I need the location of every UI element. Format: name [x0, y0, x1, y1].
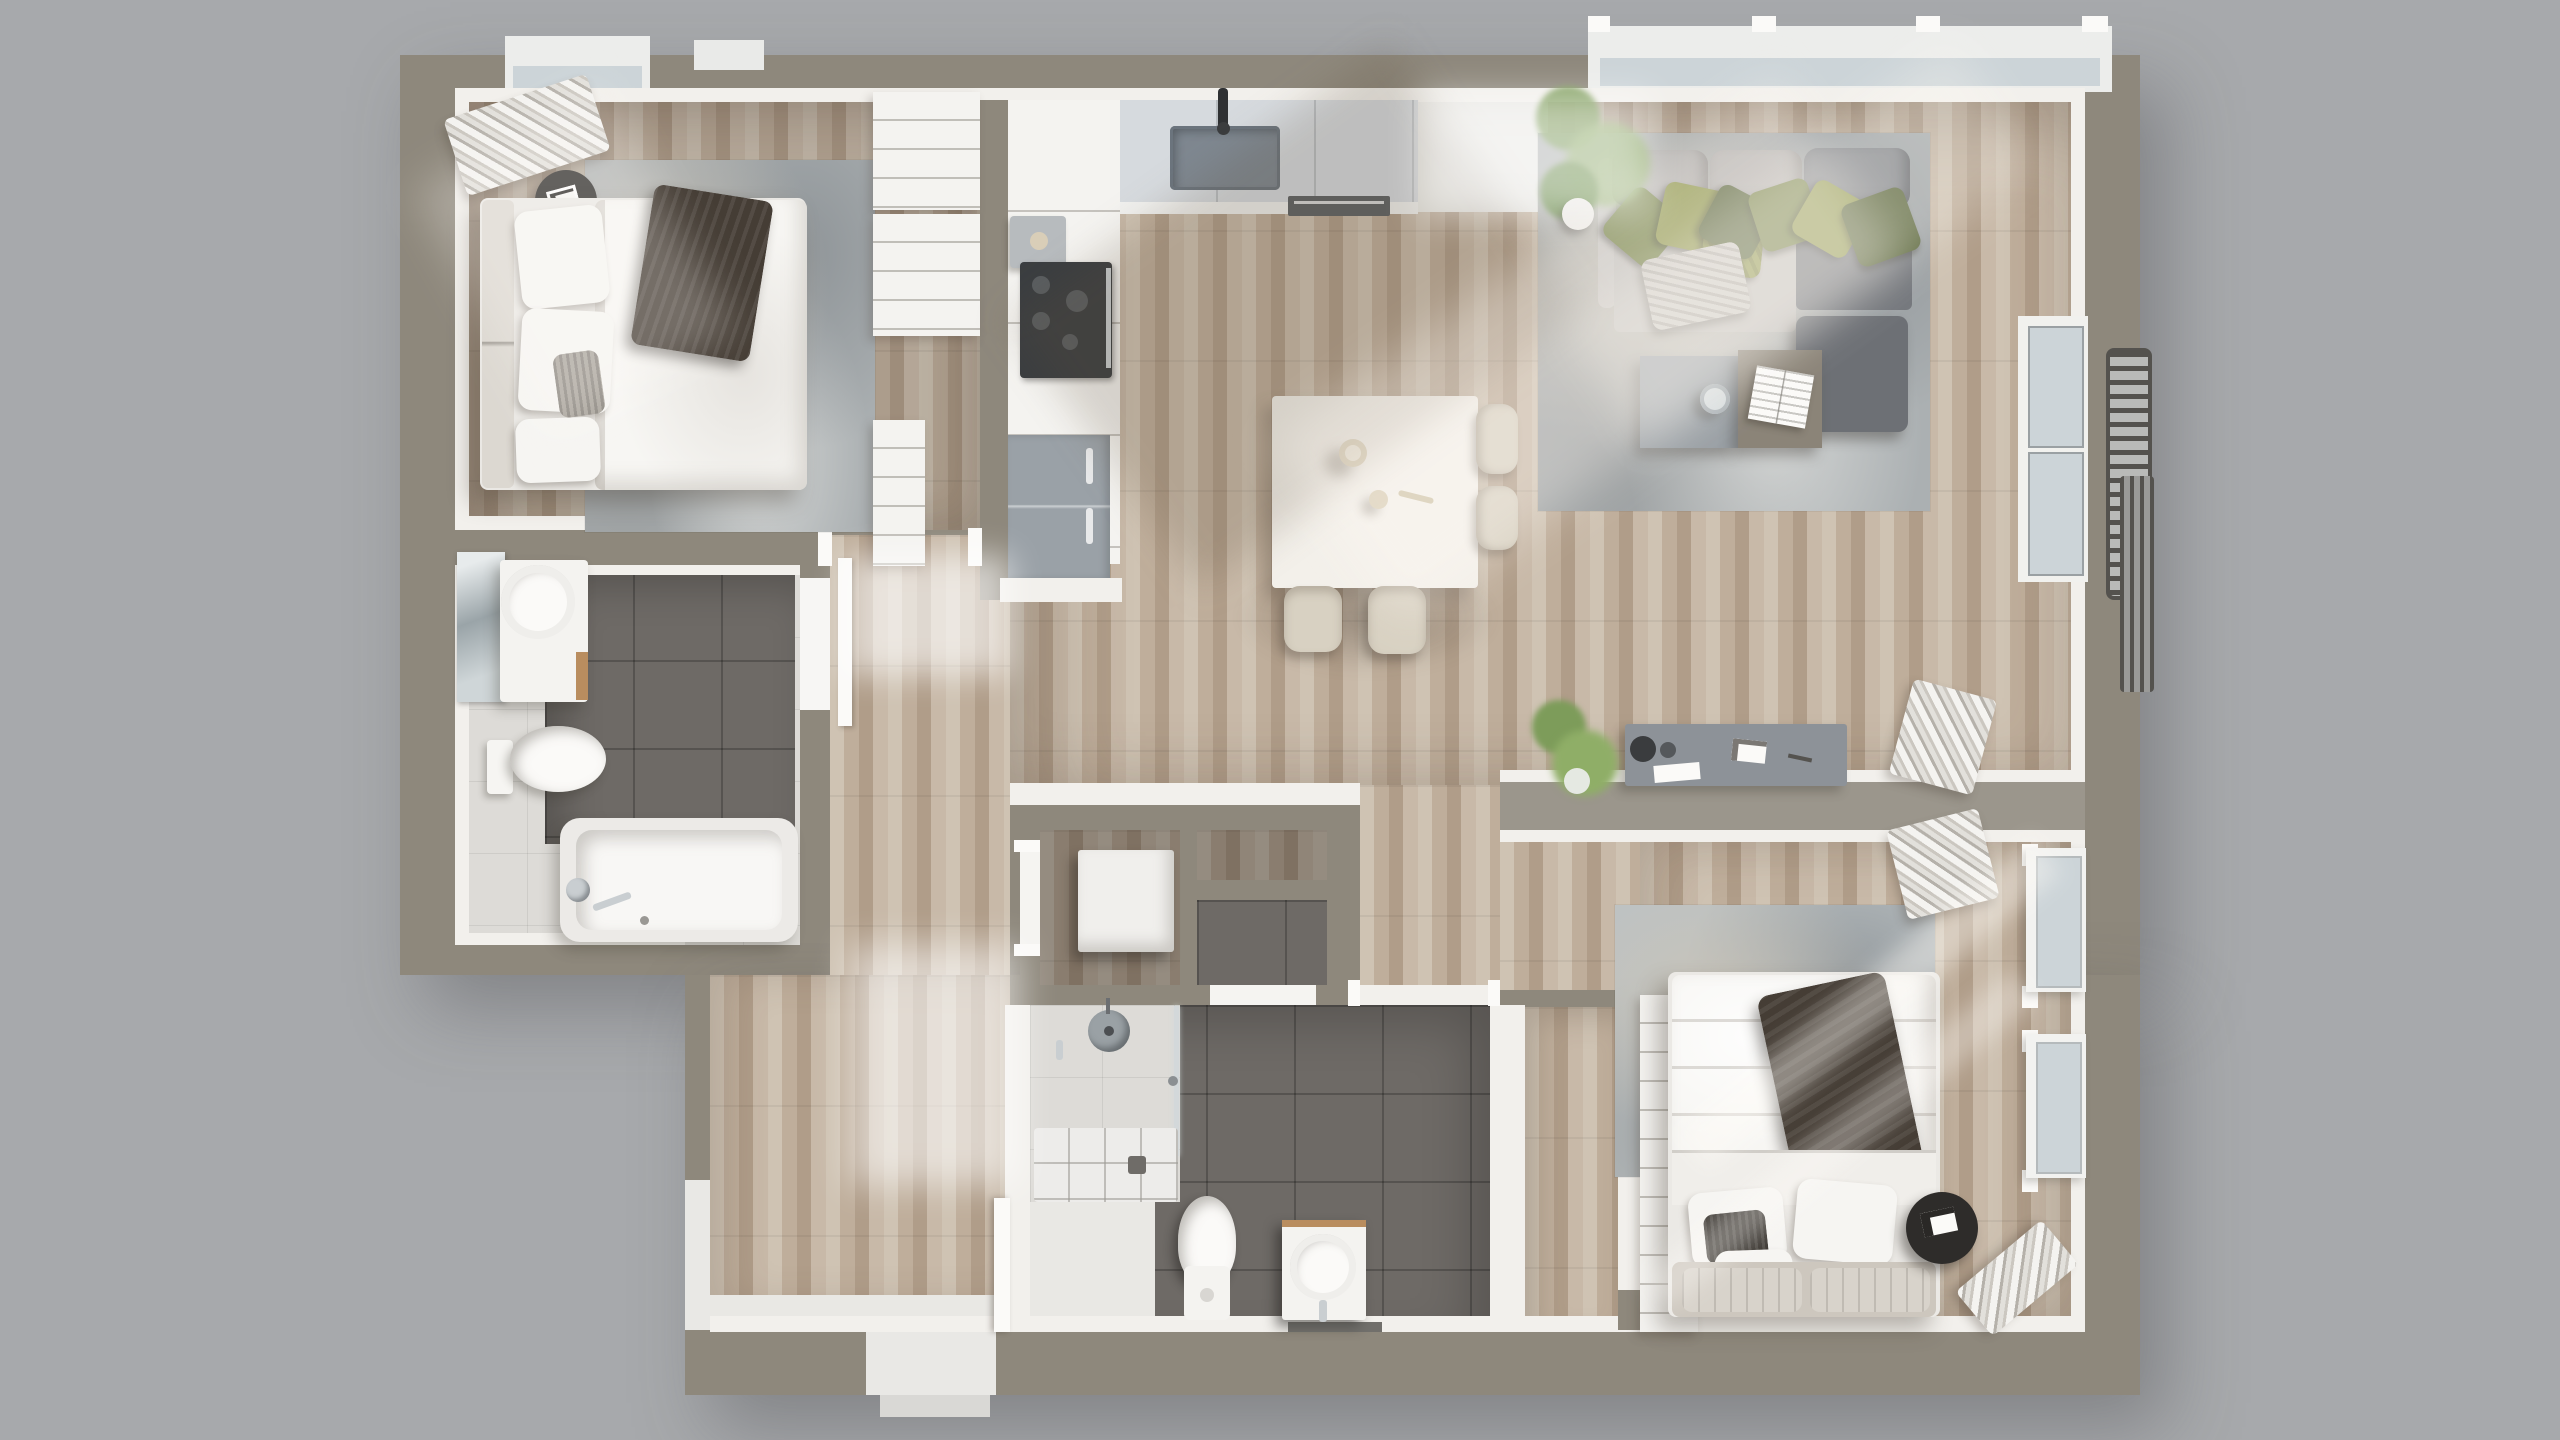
burner-icon — [1066, 290, 1088, 312]
door-jamb — [818, 528, 832, 566]
burner-icon — [1062, 334, 1078, 350]
tub-drain-icon — [640, 916, 649, 925]
desk-lamp-icon — [1630, 736, 1656, 762]
wall-central-mid1 — [1180, 830, 1197, 1005]
bed2-headboard-cushion — [1682, 1268, 1802, 1312]
window-mullion-icon — [1752, 16, 1776, 32]
toilet2-button-icon — [1200, 1288, 1214, 1302]
faucet-base-icon — [1217, 122, 1230, 135]
wall-nub — [694, 40, 764, 70]
toilet1-bowl — [510, 726, 606, 792]
niche-wood-floor — [1197, 830, 1327, 880]
radiator — [2120, 476, 2154, 692]
bedroom1-closet-shelf — [873, 420, 925, 566]
mirror — [457, 552, 505, 702]
wall-bedroom1-kitchen — [980, 100, 1010, 600]
plant-vase — [1562, 198, 1594, 230]
burner-icon — [1032, 276, 1050, 294]
bed1-accent-pillow — [552, 349, 606, 419]
window-mullion-icon — [2082, 16, 2108, 32]
shower-tray — [1034, 1128, 1178, 1202]
drinking-glass — [1700, 384, 1730, 414]
toilet1-tank — [487, 740, 513, 794]
wall-lower-left-white — [685, 1180, 710, 1330]
bed1-pillow — [515, 417, 601, 484]
hallway-upper-floor — [830, 535, 1010, 975]
door-jamb — [1488, 980, 1500, 1006]
counter-end-floor — [1418, 100, 1548, 212]
window-mullion-icon — [1916, 16, 1940, 32]
desk-photo — [1731, 738, 1767, 763]
window-mullion-icon — [1588, 16, 1610, 32]
wall-central-bottom — [1020, 985, 1200, 1005]
innerface-central-north — [1010, 783, 1360, 805]
bedroom2-window-glass — [2036, 856, 2082, 988]
shower-head-center-icon — [1104, 1026, 1114, 1036]
bed1-throw — [630, 184, 774, 363]
coffee-cup-icon — [1030, 232, 1048, 250]
walkin-closet-floor — [1525, 1007, 1618, 1330]
desk-plant-vase — [1564, 768, 1590, 794]
refrigerator — [1008, 435, 1110, 580]
bed1-pillow — [513, 204, 611, 311]
oven-handle-icon — [1294, 201, 1384, 204]
bed2-headboard-cushion — [1810, 1268, 1930, 1312]
wall-central-mid2 — [1327, 830, 1360, 1005]
dining-chair — [1368, 586, 1426, 654]
bathtub-interior — [576, 830, 782, 930]
bathroom1-door-leaf — [838, 558, 852, 726]
bath-mat — [1288, 1322, 1382, 1332]
shower-handle-icon — [1168, 1076, 1178, 1086]
cup-inner — [1345, 445, 1361, 461]
bathroom1-door-opening — [800, 578, 830, 710]
cup — [1369, 490, 1388, 509]
cooktop-rail-icon — [1106, 268, 1111, 368]
door-jamb — [1348, 980, 1360, 1006]
burner-icon — [1032, 312, 1050, 330]
bedroom1-closet-shelf — [873, 92, 980, 210]
bedroom2-window-glass — [2036, 1042, 2082, 1174]
entry-door-leaf — [994, 1198, 1010, 1332]
hallway-lower-floor — [710, 975, 1010, 1305]
entry-threshold — [866, 1332, 996, 1395]
wood-accent — [576, 652, 588, 700]
balcony-door-glass-upper — [2028, 326, 2084, 448]
bathroom2-basin — [1290, 1234, 1356, 1300]
wall-niche-divider — [1197, 880, 1327, 900]
niche-dark-opening — [1210, 985, 1316, 1005]
door-jamb — [1014, 840, 1040, 852]
innerface-bedroom2-top — [1500, 830, 2085, 842]
floor-plan — [0, 0, 2560, 1440]
oven — [1288, 196, 1390, 216]
wall-bath2-closet-divider — [1490, 1005, 1525, 1330]
wall-central-top — [1010, 805, 1360, 830]
dining-chair — [1284, 586, 1342, 652]
innerface-right-upper — [2071, 102, 2085, 318]
vanity-faucet-icon — [1319, 1300, 1327, 1322]
balcony-door-glass-lower — [2028, 452, 2084, 576]
dining-chair — [1476, 404, 1518, 474]
shower-mixer-icon — [1056, 1040, 1063, 1060]
corridor-south-threshold — [1345, 985, 1500, 1005]
wall-walkin-cap — [1618, 1290, 1640, 1330]
washing-machine — [1078, 850, 1174, 952]
fridge-handle-icon — [1086, 448, 1093, 484]
vanity-wood-edge — [1282, 1220, 1366, 1227]
door-jamb — [1014, 944, 1040, 956]
innerface-bottom — [710, 1316, 2085, 1332]
desk-lamp-icon — [1660, 742, 1676, 758]
door-jamb — [968, 528, 982, 566]
bed1-headboard — [482, 200, 514, 488]
closet-left-door-opening — [1020, 848, 1040, 948]
window-bay-living-glass — [1600, 58, 2100, 86]
niche-dark-floor — [1197, 900, 1327, 985]
shower-drain-icon — [1128, 1156, 1146, 1174]
open-magazine — [1748, 365, 1814, 428]
entry-step — [880, 1395, 990, 1417]
fridge-handle-icon — [1086, 508, 1093, 544]
kitchen-sink — [1170, 126, 1280, 190]
kitchen-column-end — [1000, 578, 1122, 602]
bathroom2-entry-zone — [1030, 1202, 1155, 1330]
bedroom1-closet-shelf — [873, 214, 980, 336]
bed2-pillow — [1792, 1178, 1899, 1266]
dining-chair — [1476, 486, 1518, 550]
bathroom1-basin — [501, 565, 575, 639]
shower-arm-icon — [1106, 998, 1110, 1014]
corridor-floor — [1360, 785, 1500, 1000]
tub-faucet-icon — [566, 878, 590, 902]
